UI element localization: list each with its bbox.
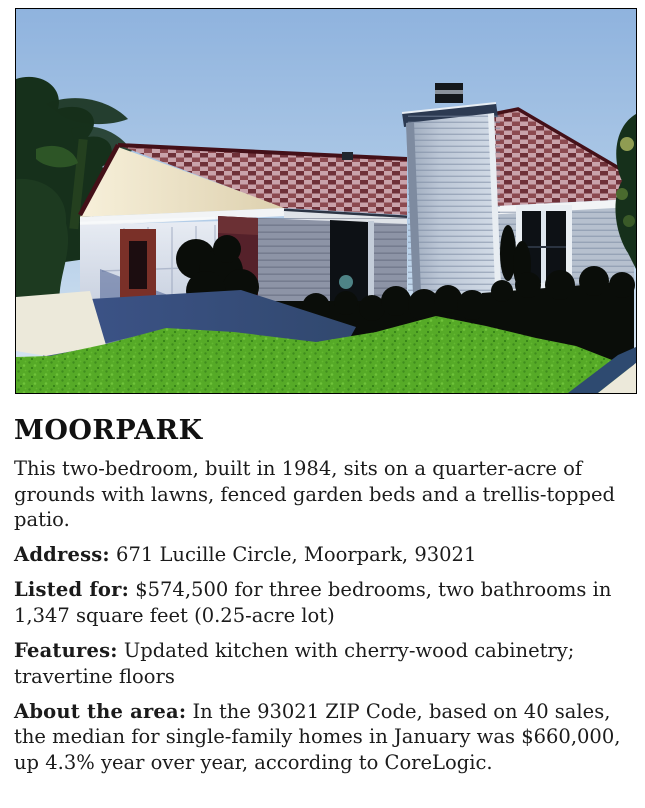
newspaper-listing-page: MOORPARK This two-bedroom, built in 1984… — [0, 0, 645, 808]
house-photo-illustration — [16, 9, 636, 393]
detail-label-address: Address: — [14, 543, 110, 566]
listing-detail-features: Features: Updated kitchen with cherry-wo… — [14, 638, 633, 689]
listing-detail-about-the-area: About the area: In the 93021 ZIP Code, b… — [14, 699, 633, 776]
listing-detail-address: Address: 671 Lucille Circle, Moorpark, 9… — [14, 542, 633, 568]
detail-label-about-the-area: About the area: — [14, 700, 186, 723]
listing-detail-listed-for: Listed for: $574,500 for three bedrooms,… — [14, 577, 633, 628]
chimney — [402, 83, 502, 317]
detail-label-listed-for: Listed for: — [14, 578, 129, 601]
listing-intro: This two-bedroom, built in 1984, sits on… — [14, 456, 633, 533]
listing-headline: MOORPARK — [14, 414, 633, 447]
listing-photo — [15, 8, 637, 394]
detail-label-features: Features: — [14, 639, 118, 662]
concrete-apron — [16, 291, 106, 356]
listing-content: MOORPARK This two-bedroom, built in 1984… — [14, 406, 633, 785]
detail-text-address: 671 Lucille Circle, Moorpark, 93021 — [110, 543, 477, 566]
